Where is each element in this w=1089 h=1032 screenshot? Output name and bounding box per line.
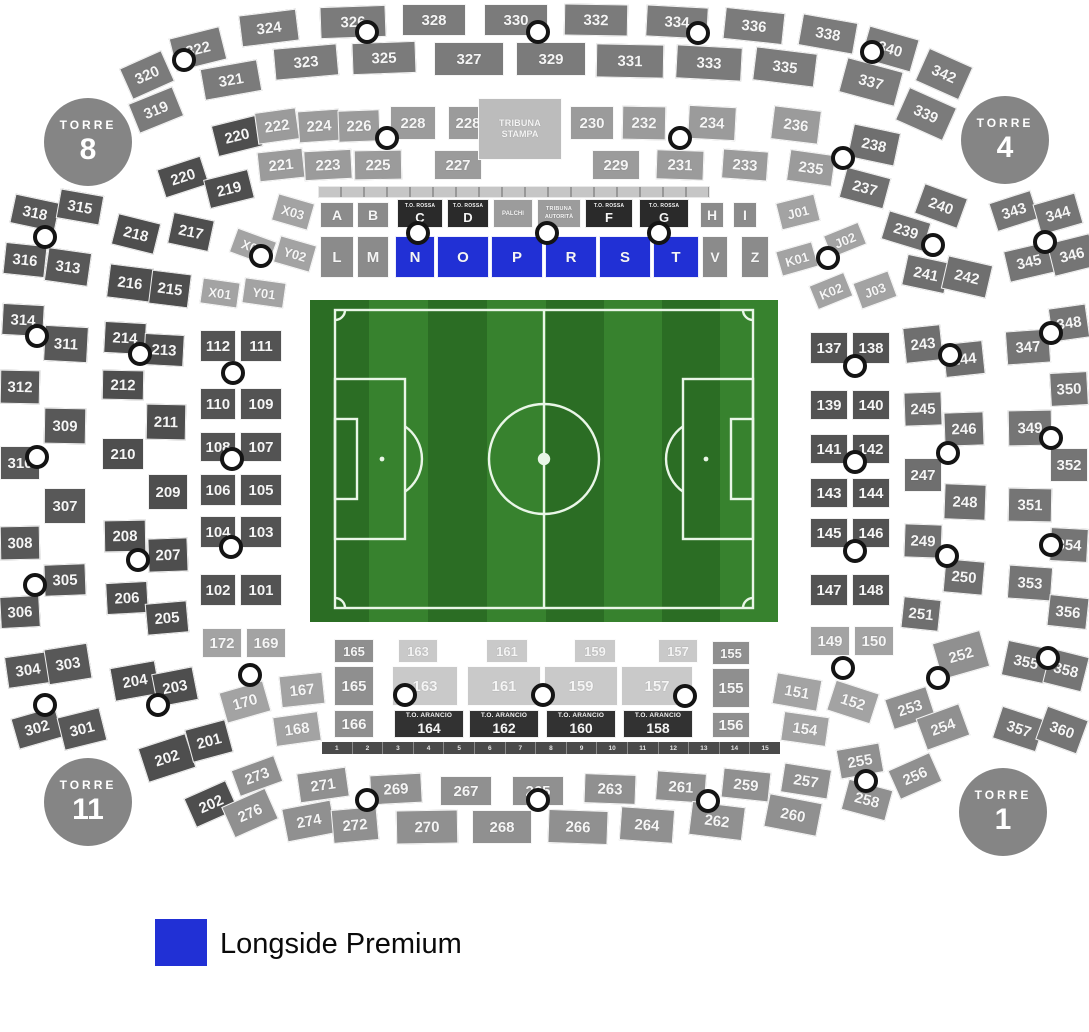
section-149[interactable]: 149 (810, 626, 850, 656)
section-label: 203 (161, 677, 188, 697)
section-label: J02 (832, 230, 857, 250)
section-210[interactable]: 210 (102, 438, 144, 470)
section-107[interactable]: 107 (240, 432, 282, 462)
section-label: 227 (445, 158, 470, 173)
section-label: 223 (315, 157, 341, 173)
section-label: 157 (667, 645, 689, 658)
section-111[interactable]: 111 (240, 330, 282, 362)
section-158[interactable]: T.O. ARANCIO158 (623, 710, 693, 738)
section-k02[interactable]: K02 (809, 272, 854, 310)
section-y02[interactable]: Y02 (273, 235, 317, 272)
section-303[interactable]: 303 (43, 643, 92, 685)
section-266[interactable]: 266 (547, 809, 608, 845)
section-label: 242 (953, 267, 981, 287)
section-label: 168 (284, 720, 311, 738)
section-329[interactable]: 329 (516, 42, 586, 76)
section-label: 250 (951, 568, 977, 585)
section-label: 162 (492, 721, 515, 735)
gate-marker (843, 539, 867, 563)
section-label: 152 (839, 691, 867, 713)
section-307[interactable]: 307 (44, 488, 86, 524)
section-label: 143 (816, 486, 841, 501)
section-235[interactable]: 235 (786, 149, 836, 187)
section-label: 331 (617, 53, 642, 68)
section-257[interactable]: 257 (780, 762, 832, 799)
section-219[interactable]: 219 (203, 169, 255, 209)
section-label: 155 (720, 647, 742, 660)
section-222[interactable]: 222 (254, 107, 300, 145)
section-321[interactable]: 321 (200, 59, 263, 101)
section-145[interactable]: 145 (810, 518, 848, 548)
section-164[interactable]: T.O. ARANCIO164 (394, 710, 464, 738)
section-sublabel: T.O. ROSSA (594, 204, 624, 209)
row-number-cell: 14 (720, 742, 751, 754)
gate-marker (128, 342, 152, 366)
section-221[interactable]: 221 (257, 148, 306, 183)
section-163[interactable]: 163 (398, 639, 438, 663)
section-label: 139 (816, 398, 841, 413)
section-label: PALCHI (502, 211, 524, 217)
section-216[interactable]: 216 (106, 263, 154, 302)
section-212[interactable]: 212 (102, 370, 145, 401)
section-224[interactable]: 224 (297, 109, 341, 144)
section-label: 217 (177, 222, 205, 242)
section-155[interactable]: 155 (712, 668, 750, 708)
section-152[interactable]: 152 (826, 680, 880, 725)
section-label: 360 (1048, 719, 1077, 742)
section-165[interactable]: 165 (334, 666, 374, 706)
section-label: 352 (1056, 458, 1081, 473)
section-label: 351 (1017, 497, 1042, 512)
section-144[interactable]: 144 (852, 478, 890, 508)
section-105[interactable]: 105 (240, 474, 282, 506)
row-number-cell: 3 (383, 742, 414, 754)
section-label: 353 (1017, 575, 1043, 592)
row-number-cell: 8 (536, 742, 567, 754)
section-label: 170 (231, 691, 259, 712)
section-230[interactable]: 230 (570, 106, 614, 140)
section-sublabel: T.O. ARANCIO (635, 713, 681, 720)
gate-marker (33, 693, 57, 717)
section-m[interactable]: M (357, 236, 389, 278)
section-159[interactable]: 159 (574, 639, 616, 663)
section-232[interactable]: 232 (622, 106, 667, 141)
section-166[interactable]: 166 (334, 710, 374, 738)
section-259[interactable]: 259 (721, 768, 772, 803)
section-j01[interactable]: J01 (775, 194, 821, 231)
bottom-row-number-strip: 123456789101112131415 (322, 742, 780, 754)
section-308[interactable]: 308 (0, 526, 40, 561)
section-267[interactable]: 267 (440, 776, 492, 806)
gate-marker (535, 221, 559, 245)
section-label: 266 (565, 819, 591, 835)
section-label: 149 (817, 634, 842, 649)
section-218[interactable]: 218 (111, 213, 161, 255)
section-251[interactable]: 251 (900, 596, 941, 632)
section-233[interactable]: 233 (721, 148, 769, 181)
section-301[interactable]: 301 (57, 707, 108, 751)
section-112[interactable]: 112 (200, 330, 236, 362)
section-label: N (410, 250, 421, 265)
section-label: K01 (784, 249, 811, 268)
section-label: 205 (154, 609, 180, 626)
section-label: 144 (858, 486, 883, 501)
section-162[interactable]: T.O. ARANCIO162 (469, 710, 539, 738)
section-label: 319 (142, 98, 171, 121)
section-328[interactable]: 328 (402, 4, 466, 36)
section-label: 249 (910, 533, 936, 549)
section-238[interactable]: 238 (847, 123, 901, 166)
section-272[interactable]: 272 (331, 806, 380, 844)
section-label: 160 (569, 721, 592, 735)
section-label: 232 (631, 115, 656, 130)
section-label: Y01 (252, 285, 277, 301)
section-label: 111 (249, 339, 272, 354)
section-172[interactable]: 172 (202, 628, 242, 658)
section-label: 344 (1044, 203, 1072, 224)
section-x01[interactable]: X01 (199, 277, 240, 308)
section-351[interactable]: 351 (1008, 488, 1053, 523)
gate-marker (1039, 426, 1063, 450)
section-154[interactable]: 154 (780, 711, 830, 747)
section-336[interactable]: 336 (722, 7, 785, 45)
section-label: H (707, 208, 717, 222)
section-170[interactable]: 170 (218, 680, 271, 723)
section-label: 269 (383, 781, 409, 797)
section-332[interactable]: 332 (564, 3, 629, 36)
section-label: 247 (910, 468, 935, 483)
section-333[interactable]: 333 (675, 44, 743, 81)
section-263[interactable]: 263 (583, 773, 636, 805)
section-sublabel: T.O. ROSSA (649, 204, 679, 209)
section-323[interactable]: 323 (273, 43, 340, 80)
tower-number: 8 (80, 133, 97, 167)
section-h[interactable]: H (700, 202, 724, 228)
section-168[interactable]: 168 (272, 711, 322, 747)
section-stampa[interactable]: TRIBUNASTAMPA (478, 98, 562, 160)
section-217[interactable]: 217 (167, 212, 215, 252)
section-label: 255 (846, 751, 873, 770)
section-label: 163 (407, 645, 429, 658)
section-p[interactable]: P (491, 236, 543, 278)
section-label: 216 (117, 274, 144, 292)
section-143[interactable]: 143 (810, 478, 848, 508)
section-271[interactable]: 271 (296, 767, 350, 804)
section-139[interactable]: 139 (810, 390, 848, 420)
section-165[interactable]: 165 (334, 639, 374, 663)
section-label: 228 (400, 116, 425, 131)
section-d[interactable]: T.O. ROSSAD (447, 199, 489, 228)
section-label: 157 (644, 679, 669, 694)
section-label: 256 (901, 764, 930, 788)
section-label: 110 (206, 397, 230, 412)
section-label: 161 (496, 645, 518, 658)
section-325[interactable]: 325 (351, 41, 416, 75)
section-label: 257 (792, 772, 819, 791)
section-y01[interactable]: Y01 (241, 277, 286, 309)
section-label: 158 (646, 721, 669, 735)
section-237[interactable]: 237 (839, 167, 892, 210)
gate-marker (126, 548, 150, 572)
section-label: 148 (858, 583, 883, 598)
section-label: 316 (12, 251, 38, 269)
section-231[interactable]: 231 (655, 149, 704, 181)
row-number-cell: 13 (689, 742, 720, 754)
section-324[interactable]: 324 (238, 9, 299, 48)
section-256[interactable]: 256 (887, 752, 942, 800)
section-label: 140 (858, 398, 883, 413)
section-label: 164 (417, 721, 440, 735)
section-label: 343 (1000, 200, 1028, 222)
section-label: 224 (306, 118, 332, 135)
section-101[interactable]: 101 (240, 574, 282, 606)
section-label: 141 (816, 442, 841, 457)
section-360[interactable]: 360 (1035, 706, 1089, 755)
section-110[interactable]: 110 (200, 388, 236, 420)
section-201[interactable]: 201 (184, 719, 233, 763)
section-label: 208 (112, 528, 137, 543)
section-220[interactable]: 220 (156, 156, 209, 199)
section-248[interactable]: 248 (943, 483, 986, 520)
legend-swatch-longside-premium (155, 919, 207, 966)
section-356[interactable]: 356 (1046, 594, 1089, 630)
section-label: 346 (1058, 245, 1086, 266)
section-103[interactable]: 103 (240, 516, 282, 548)
row-number-cell: 15 (750, 742, 780, 754)
gate-marker (831, 656, 855, 680)
section-label: 218 (122, 224, 150, 245)
section-147[interactable]: 147 (810, 574, 848, 606)
section-353[interactable]: 353 (1007, 565, 1053, 602)
section-160[interactable]: T.O. ARANCIO160 (546, 710, 616, 738)
section-label: 336 (741, 17, 767, 35)
section-137[interactable]: 137 (810, 332, 848, 364)
section-156[interactable]: 156 (712, 712, 750, 738)
football-pitch (310, 300, 778, 622)
section-161[interactable]: 161 (467, 666, 541, 706)
section-label: 337 (857, 72, 885, 93)
section-209[interactable]: 209 (148, 474, 188, 510)
section-k01[interactable]: K01 (775, 241, 819, 276)
section-label: 274 (295, 811, 322, 831)
section-148[interactable]: 148 (852, 574, 890, 606)
section-label: B (368, 208, 378, 222)
section-label: 107 (248, 440, 273, 455)
section-306[interactable]: 306 (0, 595, 41, 629)
section-label: 357 (1005, 718, 1033, 740)
section-label: 350 (1056, 381, 1082, 397)
section-223[interactable]: 223 (303, 149, 353, 181)
section-312[interactable]: 312 (0, 370, 40, 405)
section-352[interactable]: 352 (1050, 448, 1088, 482)
section-label: M (367, 250, 380, 265)
section-309[interactable]: 309 (44, 408, 87, 445)
gate-marker (355, 20, 379, 44)
section-label: 236 (783, 116, 810, 134)
section-247[interactable]: 247 (904, 458, 942, 492)
section-338[interactable]: 338 (798, 13, 859, 54)
section-label: 112 (206, 339, 230, 354)
section-b[interactable]: B (357, 202, 389, 228)
section-305[interactable]: 305 (43, 563, 86, 596)
section-label: 169 (253, 636, 278, 651)
section-label: 165 (343, 645, 365, 658)
section-label: 252 (947, 644, 975, 665)
gate-marker (668, 126, 692, 150)
section-169[interactable]: 169 (246, 628, 286, 658)
tower-11: TORRE11 (44, 758, 132, 846)
section-205[interactable]: 205 (145, 600, 190, 636)
section-155[interactable]: 155 (712, 641, 750, 665)
section-sublabel: TRIBUNA (499, 119, 541, 128)
section-l[interactable]: L (320, 236, 354, 278)
section-242[interactable]: 242 (941, 255, 993, 298)
section-label: Y02 (282, 245, 308, 264)
section-167[interactable]: 167 (278, 672, 325, 708)
section-label: 105 (248, 483, 273, 498)
section-229[interactable]: 229 (592, 150, 640, 180)
gate-marker (1039, 533, 1063, 557)
tower-8: TORRE8 (44, 98, 132, 186)
gate-marker (526, 20, 550, 44)
section-label: 321 (217, 70, 244, 89)
section-label: 254 (929, 716, 958, 739)
section-245[interactable]: 245 (903, 391, 942, 426)
section-j03[interactable]: J03 (852, 270, 897, 309)
row-number-cell: 12 (659, 742, 690, 754)
section-207[interactable]: 207 (147, 537, 188, 572)
section-270[interactable]: 270 (396, 809, 459, 844)
section-150[interactable]: 150 (854, 626, 894, 656)
section-311[interactable]: 311 (43, 325, 89, 363)
section-label: 138 (858, 341, 883, 356)
section-102[interactable]: 102 (200, 574, 236, 606)
section-161[interactable]: 161 (486, 639, 528, 663)
section-215[interactable]: 215 (148, 270, 192, 309)
section-label: 211 (154, 414, 178, 429)
section-a[interactable]: A (320, 202, 354, 228)
row-number-cell: 10 (597, 742, 628, 754)
section-label: 172 (209, 636, 234, 651)
section-label: 312 (7, 379, 32, 394)
section-s[interactable]: S (599, 236, 651, 278)
section-label: 304 (15, 661, 42, 679)
section-label: 239 (892, 220, 920, 242)
section-sublabel: TRIBUNA (546, 207, 572, 213)
section-159[interactable]: 159 (544, 666, 618, 706)
section-109[interactable]: 109 (240, 388, 282, 420)
section-label: 267 (453, 784, 478, 799)
section-label: 260 (779, 805, 806, 825)
gate-marker (146, 693, 170, 717)
section-label: T (671, 250, 680, 265)
section-label: F (605, 211, 613, 224)
gate-marker (936, 441, 960, 465)
gate-marker (860, 40, 884, 64)
section-label: O (457, 250, 469, 265)
section-x03[interactable]: X03 (271, 193, 315, 230)
section-label: 106 (205, 483, 230, 498)
section-label: J03 (863, 280, 888, 300)
section-318[interactable]: 318 (9, 194, 60, 233)
section-331[interactable]: 331 (596, 43, 665, 78)
section-f[interactable]: T.O. ROSSAF (585, 199, 633, 228)
row-number-cell: 11 (628, 742, 659, 754)
section-label: 154 (792, 720, 819, 738)
section-v[interactable]: V (702, 236, 728, 278)
section-234[interactable]: 234 (687, 105, 737, 141)
section-label: STAMPA (502, 130, 539, 139)
section-label: 262 (704, 812, 731, 830)
gate-marker (355, 788, 379, 812)
section-label: 207 (155, 547, 181, 563)
section-label: R (566, 250, 577, 265)
section-315[interactable]: 315 (56, 188, 105, 225)
section-157[interactable]: 157 (658, 639, 698, 663)
section-236[interactable]: 236 (770, 105, 822, 145)
gate-marker (696, 789, 720, 813)
section-335[interactable]: 335 (752, 46, 818, 87)
section-z[interactable]: Z (741, 236, 769, 278)
section-227[interactable]: 227 (434, 150, 482, 180)
section-label: 264 (634, 817, 660, 834)
section-label: 320 (133, 63, 162, 87)
section-label: 238 (860, 135, 888, 155)
gate-marker (816, 246, 840, 270)
section-211[interactable]: 211 (146, 404, 187, 441)
section-label: 151 (783, 682, 810, 701)
gate-marker (33, 225, 57, 249)
gate-marker (921, 233, 945, 257)
section-palchi[interactable]: PALCHI (493, 199, 533, 228)
section-label: 345 (1015, 252, 1043, 272)
gate-marker (219, 535, 243, 559)
tower-name: TORRE (975, 788, 1032, 802)
section-260[interactable]: 260 (763, 793, 822, 837)
gate-marker (1039, 321, 1063, 345)
section-268[interactable]: 268 (472, 810, 532, 844)
section-225[interactable]: 225 (354, 150, 403, 181)
section-label: 309 (52, 418, 77, 433)
section-o[interactable]: O (437, 236, 489, 278)
gate-marker (935, 544, 959, 568)
section-label: 234 (699, 115, 725, 131)
section-106[interactable]: 106 (200, 474, 236, 506)
gate-marker (221, 361, 245, 385)
section-274[interactable]: 274 (281, 800, 337, 843)
section-label: 109 (248, 397, 273, 412)
section-label: 324 (256, 19, 283, 37)
section-344[interactable]: 344 (1032, 193, 1083, 236)
section-label: 101 (248, 583, 273, 598)
section-label: V (710, 250, 719, 264)
section-151[interactable]: 151 (772, 672, 823, 712)
section-i[interactable]: I (733, 202, 757, 228)
gate-marker (854, 769, 878, 793)
section-350[interactable]: 350 (1049, 371, 1089, 407)
section-343[interactable]: 343 (988, 190, 1039, 232)
stadium-seating-map: 123456789101112131415 Longside Premium 3… (0, 0, 1089, 1032)
section-label: 229 (603, 158, 628, 173)
section-206[interactable]: 206 (105, 581, 149, 615)
section-313[interactable]: 313 (44, 247, 92, 287)
section-327[interactable]: 327 (434, 42, 504, 76)
section-label: 202 (197, 792, 226, 816)
section-140[interactable]: 140 (852, 390, 890, 420)
section-label: 311 (54, 336, 79, 352)
section-264[interactable]: 264 (619, 806, 675, 844)
section-label: 161 (491, 679, 516, 694)
